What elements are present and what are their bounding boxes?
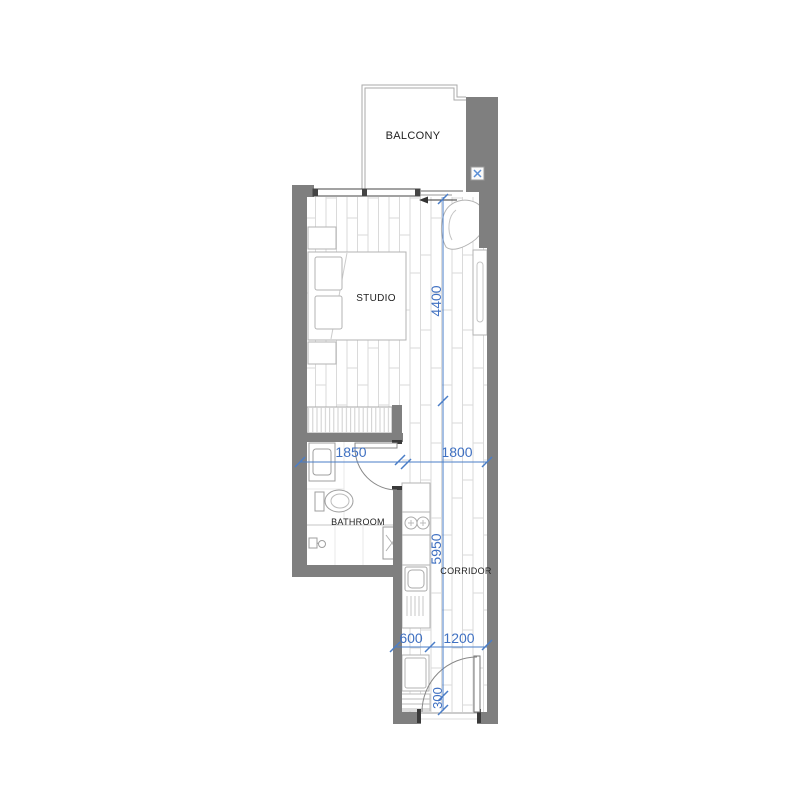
nightstand-top	[308, 227, 336, 249]
wall-studio-bathroom	[307, 433, 403, 442]
shoe-rack	[401, 694, 430, 711]
wall-bathroom-right-upper	[392, 405, 402, 444]
nightstand-bottom	[308, 342, 336, 364]
washing-machine	[402, 655, 429, 691]
wall-bathroom-bottom	[292, 565, 402, 577]
dim-entry-offset: 300	[430, 668, 446, 728]
pillow	[315, 257, 342, 290]
dim-entry-width: 1200	[429, 630, 489, 646]
bathroom-label: BATHROOM	[308, 517, 408, 527]
wardrobe	[307, 407, 392, 433]
studio-label: STUDIO	[326, 293, 426, 304]
kitchen-counter	[402, 483, 430, 628]
balcony-label: BALCONY	[363, 130, 463, 142]
dim-studio-length: 4400	[428, 271, 444, 331]
wall-left-cap	[292, 185, 314, 197]
toilet	[315, 490, 353, 512]
dim-living-width: 1800	[427, 444, 487, 460]
dim-corridor-length: 5950	[428, 519, 444, 579]
wall-right-pad	[479, 190, 487, 248]
ac-cross-icon	[471, 167, 484, 180]
window-wall	[313, 189, 420, 196]
floorplan-canvas: BALCONY STUDIO BATHROOM CORRIDOR 4400 18…	[0, 0, 800, 800]
floorplan-drawing	[0, 0, 800, 800]
tv-console	[473, 250, 487, 335]
wall-left	[292, 185, 307, 577]
wall-bottom-left	[393, 712, 421, 724]
dim-bathroom-width: 1850	[321, 444, 381, 460]
